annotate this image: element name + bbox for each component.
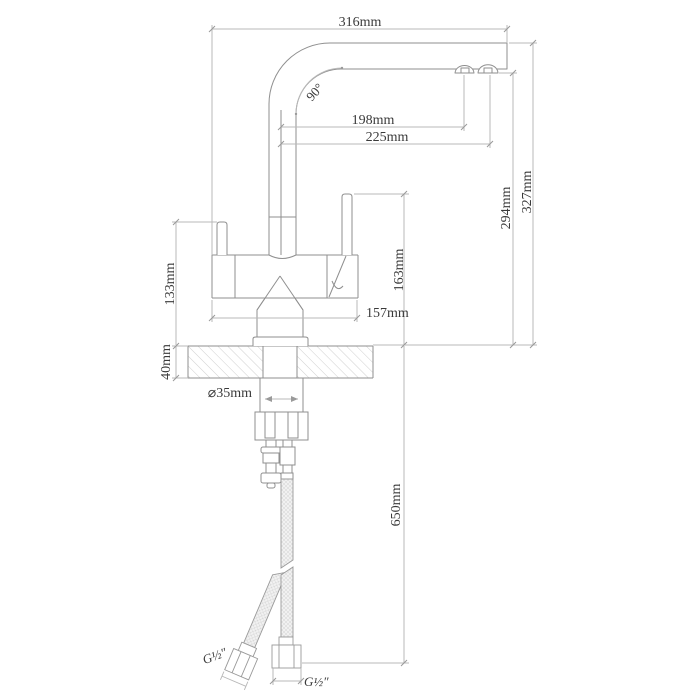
label-handle-height: 163mm bbox=[392, 249, 407, 292]
label-outlet2-offset: 225mm bbox=[366, 130, 409, 145]
mounting-nut bbox=[255, 412, 308, 440]
label-hose-length: 650mm bbox=[389, 484, 404, 527]
faucet-dimension-drawing: 316mm 90° 198mm 225mm 294mm 327mm 163mm … bbox=[0, 0, 700, 700]
label-body-height: 133mm bbox=[163, 263, 178, 306]
label-outlet-height: 294mm bbox=[499, 187, 514, 230]
countertop bbox=[188, 346, 373, 378]
label-overall-height: 327mm bbox=[520, 171, 535, 214]
counter-hole bbox=[263, 346, 297, 378]
body-fill bbox=[212, 255, 358, 298]
label-outlet1-offset: 198mm bbox=[352, 113, 395, 128]
right-handle bbox=[342, 194, 352, 255]
nut-slot bbox=[265, 412, 275, 438]
label-body-width: 157mm bbox=[366, 306, 409, 321]
base-flange bbox=[253, 337, 308, 346]
nut-slot bbox=[288, 412, 298, 438]
label-spout-reach: 316mm bbox=[339, 15, 382, 30]
label-counter-thickness: 40mm bbox=[159, 344, 174, 380]
threaded-shank bbox=[260, 378, 303, 412]
label-thread-right: G½″ bbox=[304, 674, 329, 689]
label-hole-diameter: ⌀35mm bbox=[208, 386, 252, 401]
left-handle bbox=[217, 222, 227, 255]
